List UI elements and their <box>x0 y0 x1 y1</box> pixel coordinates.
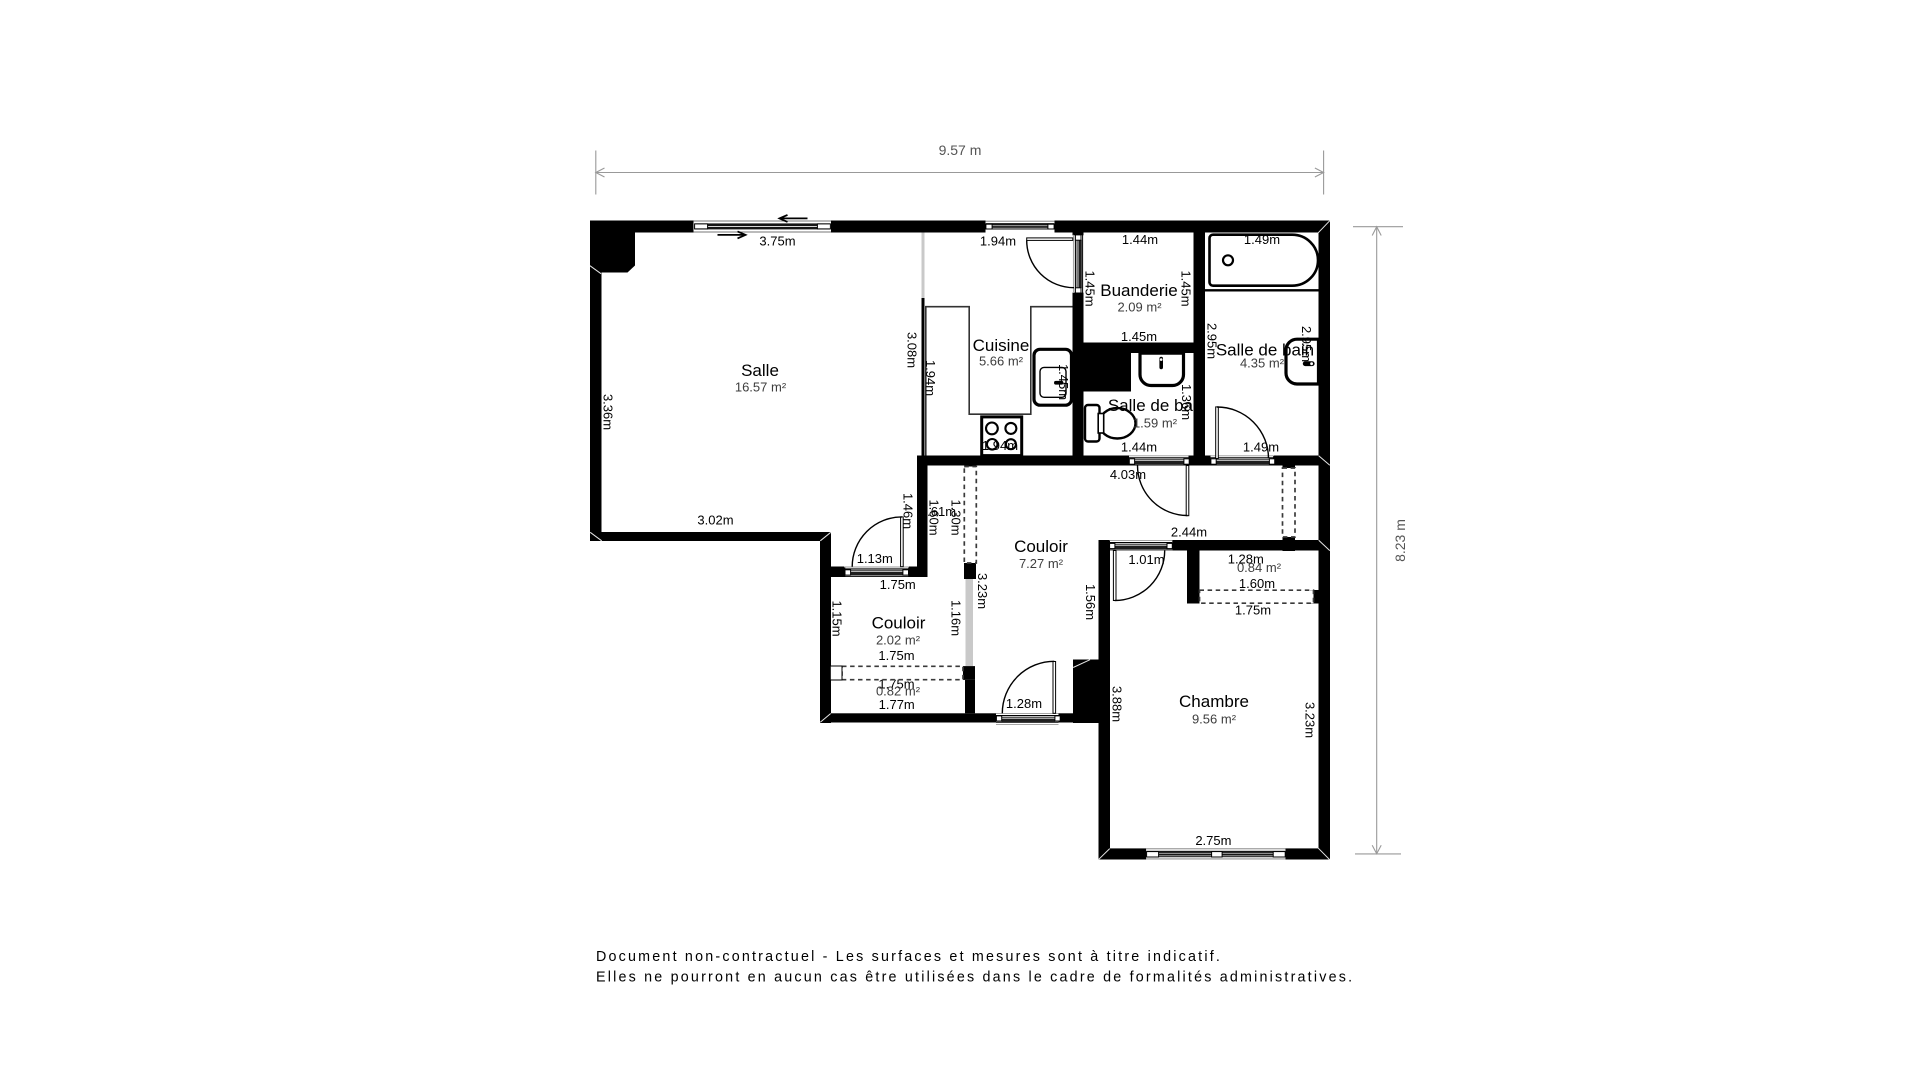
svg-text:Cuisine: Cuisine <box>973 336 1030 355</box>
svg-text:2.44m: 2.44m <box>1171 525 1207 540</box>
svg-text:8.23 m: 8.23 m <box>1392 519 1408 562</box>
svg-text:1.45m: 1.45m <box>1056 364 1071 400</box>
svg-text:Buanderie: Buanderie <box>1100 281 1178 300</box>
svg-text:16.57 m²: 16.57 m² <box>735 380 787 395</box>
svg-text:3.36m: 3.36m <box>601 394 616 430</box>
svg-text:2.09 m²: 2.09 m² <box>1117 300 1162 315</box>
svg-text:2.95m: 2.95m <box>1299 326 1314 362</box>
svg-text:1.16m: 1.16m <box>949 600 964 636</box>
svg-text:1.13m: 1.13m <box>857 551 893 566</box>
svg-text:1.75m: 1.75m <box>1235 603 1271 618</box>
svg-text:Chambre: Chambre <box>1179 692 1249 711</box>
svg-text:Couloir: Couloir <box>872 614 926 633</box>
svg-text:3.23m: 3.23m <box>1303 702 1318 738</box>
svg-text:7.27 m²: 7.27 m² <box>1019 556 1064 571</box>
svg-text:1.01m: 1.01m <box>1128 552 1164 567</box>
svg-text:1.56m: 1.56m <box>1083 584 1098 620</box>
svg-text:3.02m: 3.02m <box>697 513 733 528</box>
svg-text:4.03m: 4.03m <box>1110 467 1146 482</box>
svg-text:1.44m: 1.44m <box>1121 440 1157 455</box>
svg-text:1.60m: 1.60m <box>927 499 942 535</box>
svg-text:Document non-contractuel - Les: Document non-contractuel - Les surfaces … <box>596 949 1222 965</box>
svg-text:1.60m: 1.60m <box>1239 576 1275 591</box>
svg-text:1.44m: 1.44m <box>1122 232 1158 247</box>
svg-text:5.66 m²: 5.66 m² <box>979 354 1024 369</box>
svg-text:9.56 m²: 9.56 m² <box>1192 712 1237 727</box>
svg-text:1.94m: 1.94m <box>923 360 938 396</box>
svg-text:2.75m: 2.75m <box>1195 833 1231 848</box>
svg-text:1.45m: 1.45m <box>1179 270 1194 306</box>
svg-text:2.95m: 2.95m <box>1205 323 1220 359</box>
svg-text:1.59 m²: 1.59 m² <box>1133 416 1178 431</box>
svg-text:3.75m: 3.75m <box>759 234 795 249</box>
svg-text:Elles ne pourront en aucun cas: Elles ne pourront en aucun cas être util… <box>596 970 1354 986</box>
svg-text:1.49m: 1.49m <box>1243 440 1279 455</box>
svg-text:1.45m: 1.45m <box>1083 270 1098 306</box>
svg-text:1.75m: 1.75m <box>880 577 916 592</box>
svg-text:1.28m: 1.28m <box>1006 696 1042 711</box>
svg-text:9.57 m: 9.57 m <box>939 142 982 158</box>
svg-text:1.49m: 1.49m <box>1244 232 1280 247</box>
svg-text:4.35 m²: 4.35 m² <box>1240 356 1285 371</box>
svg-text:1.36m: 1.36m <box>1179 384 1194 420</box>
svg-text:3.88m: 3.88m <box>1110 686 1125 722</box>
svg-text:3.08m: 3.08m <box>905 332 920 368</box>
svg-text:1.15m: 1.15m <box>830 600 845 636</box>
svg-text:1.45m: 1.45m <box>1121 329 1157 344</box>
svg-text:Salle: Salle <box>741 361 779 380</box>
svg-text:Couloir: Couloir <box>1014 537 1068 556</box>
svg-text:2.02 m²: 2.02 m² <box>876 633 921 648</box>
svg-text:1.30m: 1.30m <box>949 499 964 535</box>
svg-text:1.94m: 1.94m <box>980 233 1016 248</box>
svg-text:1.94m: 1.94m <box>982 438 1018 453</box>
svg-text:1.75m: 1.75m <box>878 648 914 663</box>
svg-text:3.23m: 3.23m <box>975 573 990 609</box>
svg-text:0.84 m²: 0.84 m² <box>1237 560 1282 575</box>
svg-text:1.77m: 1.77m <box>879 697 915 712</box>
